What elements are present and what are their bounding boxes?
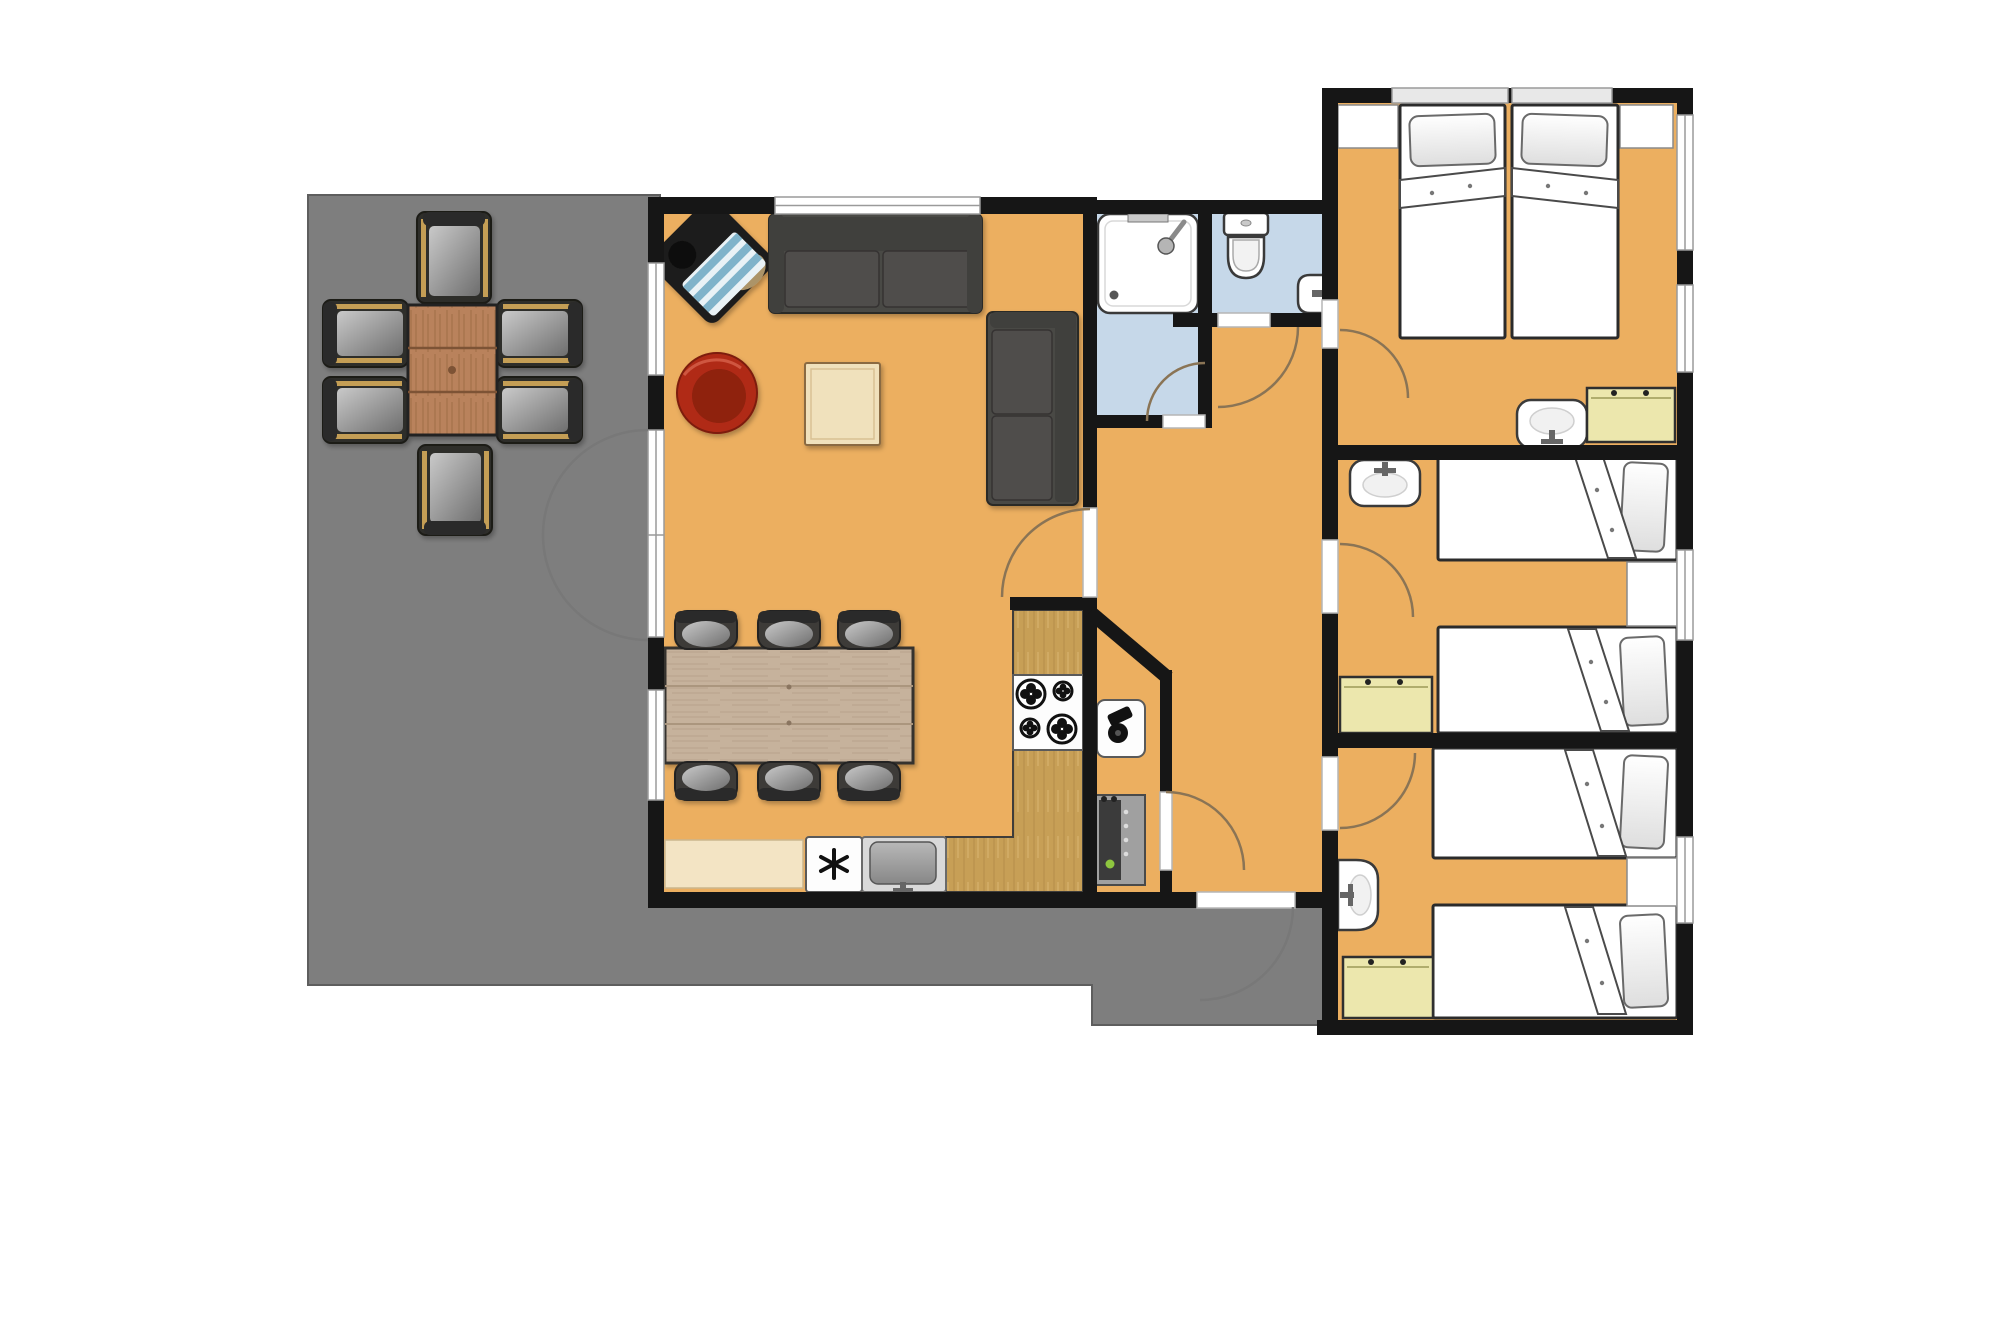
dining-chair [675,762,737,800]
window [1677,285,1693,372]
dining-table [665,648,913,763]
wardrobe [1343,957,1433,1018]
corner-table [1620,105,1673,148]
wardrobe [1587,388,1675,442]
stove-burner-icon [1048,715,1076,743]
wall-segment [1097,200,1338,214]
stove-burner-icon [1017,680,1045,708]
dining-chair [675,611,737,649]
outdoor-chair [323,377,408,443]
door-threshold [1163,415,1205,428]
coffee-table [805,363,880,445]
bed [1438,627,1677,733]
wall-segment [1317,1020,1693,1035]
window [1677,115,1693,250]
toilet [1224,213,1268,278]
outdoor-chair [418,445,492,535]
bed [1433,905,1677,1018]
window [648,263,664,375]
wall-segment [1173,313,1212,327]
dining-chair [838,762,900,800]
outdoor-chair [323,300,408,367]
freezer [806,837,862,892]
corner-table [1338,105,1398,148]
wall-segment [648,892,1097,908]
wall-segment [1083,597,1097,892]
door-threshold [1322,300,1338,348]
bed [1433,748,1677,858]
stove [1013,675,1083,750]
door-threshold [1197,892,1295,908]
sofa-3-seat [769,214,982,313]
bed [1438,455,1677,560]
shower-tray [1098,214,1198,313]
stove-burner-icon [1021,719,1039,737]
door-threshold [1160,792,1172,870]
window [648,690,664,800]
window [1512,88,1612,103]
nightstand [1627,562,1677,626]
dining-chair [758,611,820,649]
outdoor-chair [497,300,582,367]
wall-segment [1338,733,1677,748]
bench-counter [665,840,803,888]
wardrobe [1340,677,1432,733]
bedroom-sink [1350,460,1420,506]
bed [1512,105,1618,338]
stove-burner-icon [1054,682,1072,700]
water-heater-unit [1097,700,1145,757]
outdoor-chair [497,377,582,443]
wall-segment [1160,670,1172,792]
bedroom-sink [1338,860,1378,930]
patio-double-door [648,430,664,637]
door-threshold [1218,313,1270,327]
drain-icon [1110,291,1119,300]
floor-plan-canvas [0,0,2000,1333]
outdoor-table [408,305,497,435]
wall-segment [1338,445,1677,460]
window [1677,550,1693,640]
door-threshold [1083,508,1097,597]
boiler-cabinet [1095,795,1145,885]
kitchen-sink [862,837,946,894]
wall-segment [1010,597,1097,610]
wall-segment [1160,870,1172,892]
wall-segment [1083,214,1097,508]
floor-plan-page [0,0,2000,1333]
dining-chair [758,762,820,800]
outdoor-chair [417,212,491,303]
dining-chair [838,611,900,649]
nightstand [1627,858,1677,906]
window [1392,88,1508,103]
bed [1400,105,1505,338]
bedroom-sink [1517,400,1587,448]
window [1677,837,1693,923]
red-round-armchair [677,353,757,433]
window [775,197,980,214]
sofa-2-seat [987,312,1078,505]
door-threshold [1322,540,1338,613]
door-threshold [1322,757,1338,830]
